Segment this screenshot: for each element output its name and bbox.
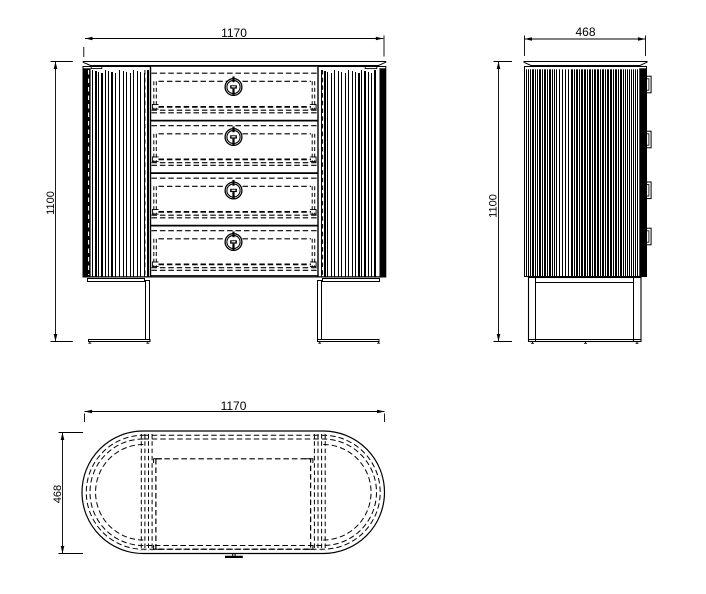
svg-text:1100: 1100	[488, 194, 500, 218]
svg-text:1170: 1170	[221, 399, 247, 413]
svg-text:468: 468	[575, 25, 595, 39]
svg-text:1170: 1170	[221, 26, 247, 40]
svg-text:1100: 1100	[45, 191, 57, 215]
svg-text:468: 468	[52, 485, 64, 503]
